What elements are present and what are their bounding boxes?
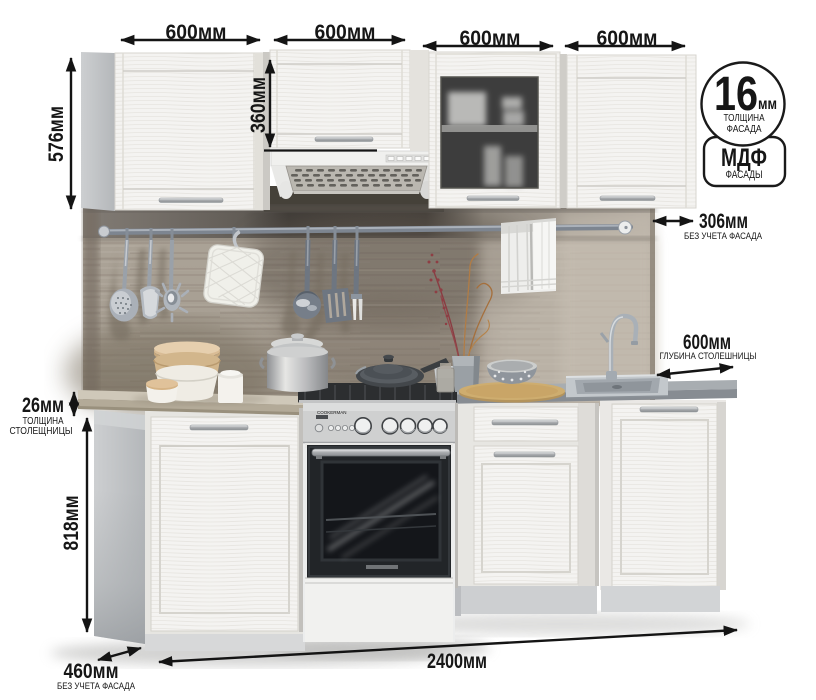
svg-text:БЕЗ УЧЕТА ФАСАДА: БЕЗ УЧЕТА ФАСАДА [684, 231, 763, 242]
svg-text:2400мм: 2400мм [427, 650, 487, 673]
svg-text:ФАСАДЫ: ФАСАДЫ [726, 169, 763, 181]
svg-text:600мм: 600мм [166, 21, 227, 44]
svg-text:818мм: 818мм [60, 496, 83, 551]
svg-text:ФАСАДА: ФАСАДА [727, 123, 762, 135]
svg-text:мм: мм [758, 96, 777, 113]
svg-text:360мм: 360мм [247, 77, 270, 133]
svg-text:26мм: 26мм [22, 394, 64, 417]
svg-text:ГЛУБИНА СТОЛЕШНИЦЫ: ГЛУБИНА СТОЛЕШНИЦЫ [660, 351, 757, 362]
svg-text:600мм: 600мм [460, 27, 521, 50]
svg-text:576мм: 576мм [45, 106, 68, 162]
svg-text:СТОЛЕЩНИЦЫ: СТОЛЕЩНИЦЫ [10, 426, 73, 437]
svg-text:БЕЗ УЧЕТА ФАСАДА: БЕЗ УЧЕТА ФАСАДА [57, 681, 136, 692]
svg-text:МДФ: МДФ [721, 144, 767, 172]
svg-text:306мм: 306мм [699, 210, 748, 233]
svg-text:COOKERMAN: COOKERMAN [317, 410, 347, 415]
svg-text:460мм: 460мм [64, 660, 119, 683]
svg-text:600мм: 600мм [597, 27, 658, 50]
svg-text:600мм: 600мм [315, 21, 376, 44]
